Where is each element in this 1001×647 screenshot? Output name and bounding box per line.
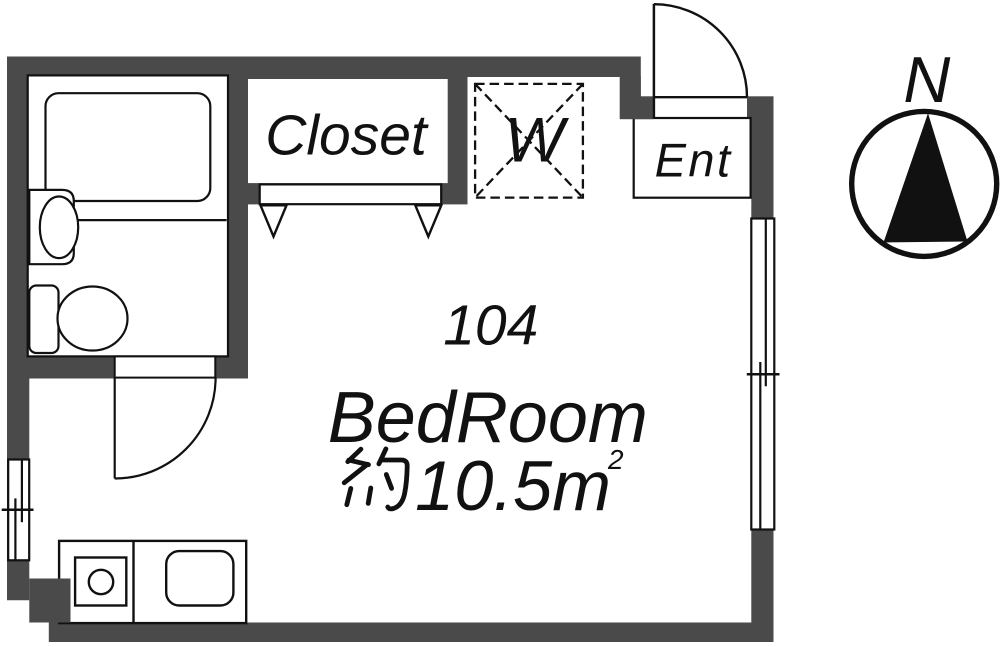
svg-text:10.5m: 10.5m [415,446,611,525]
svg-text:Closet: Closet [265,104,429,168]
svg-text:104: 104 [443,293,538,357]
svg-text:N: N [903,43,950,116]
svg-text:2: 2 [607,444,624,475]
svg-text:W: W [505,106,570,176]
svg-text:Ent: Ent [655,134,733,187]
